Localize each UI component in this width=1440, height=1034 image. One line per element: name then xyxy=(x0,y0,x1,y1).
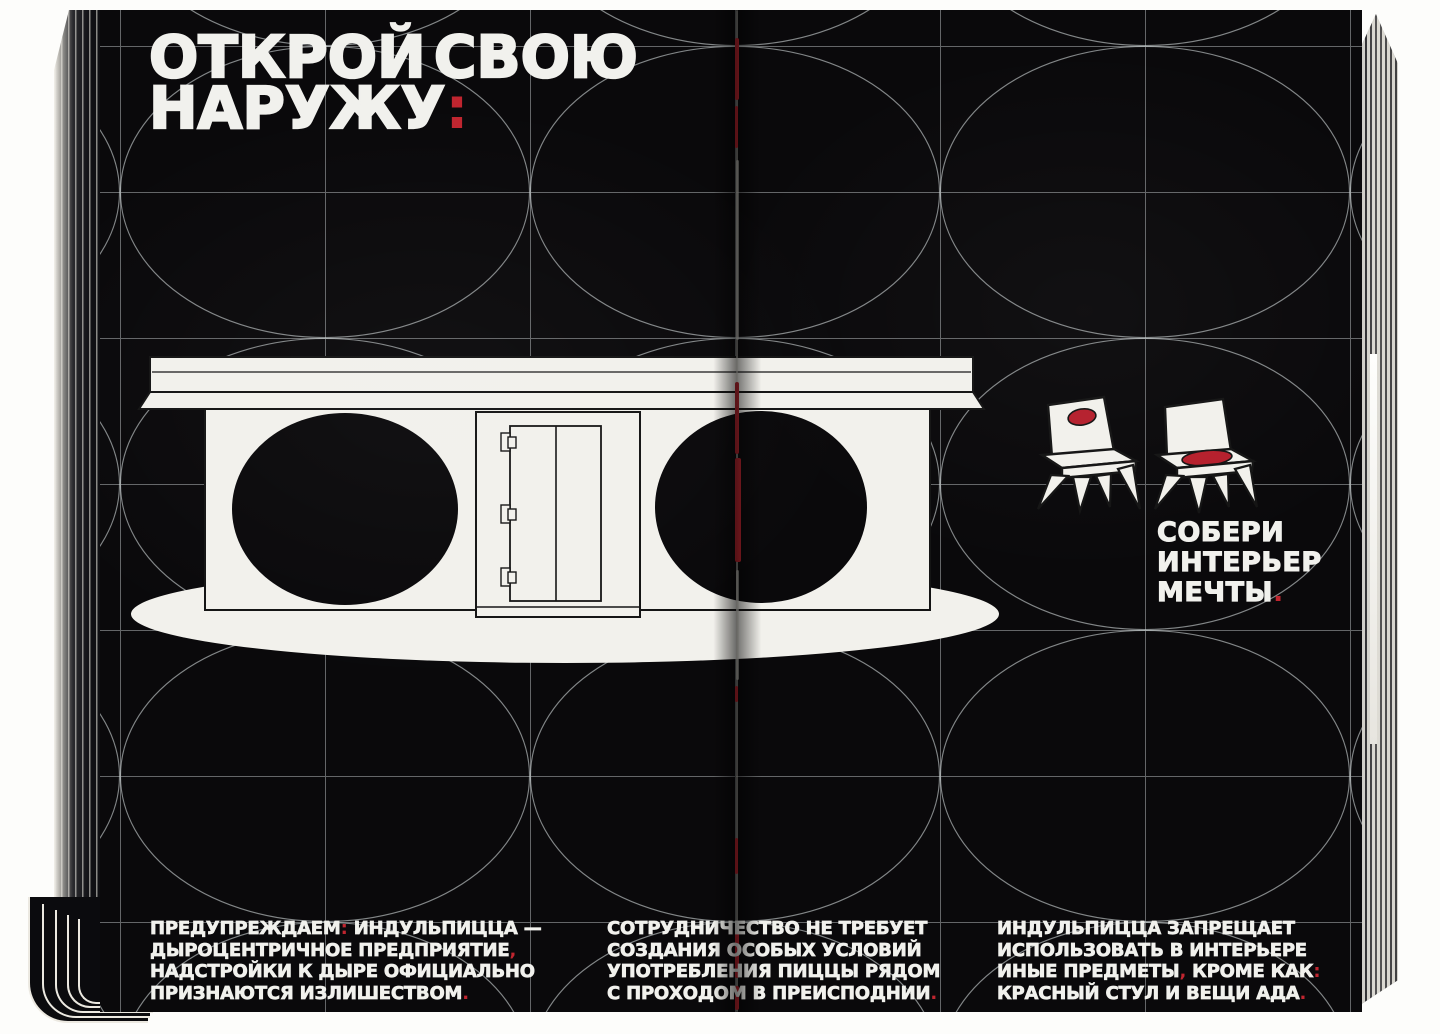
counter-top-slab xyxy=(150,357,973,392)
page-edge-highlight xyxy=(1370,354,1377,744)
spine-stitch-red xyxy=(735,382,739,454)
spine-crease xyxy=(736,160,739,340)
footnote-prohibition: ИНДУЛЬПИЦЦА ЗАПРЕЩАЕТИСПОЛЬЗОВАТЬ В ИНТЕ… xyxy=(997,918,1320,1004)
chair-left-icon xyxy=(1038,397,1140,511)
page-stack-left-edge xyxy=(54,10,104,1012)
spine-stitch-red xyxy=(735,458,741,562)
page-stack-right-edge xyxy=(1360,14,1398,1010)
magazine-spread: ОТКРОЙ СВОЮНАРУЖУ: СОБЕРИИНТЕРЬЕРМЕЧТЫ. … xyxy=(100,10,1362,1012)
spine-crease xyxy=(736,570,739,680)
interior-note: СОБЕРИИНТЕРЬЕРМЕЧТЫ. xyxy=(1157,518,1322,608)
spine-fold xyxy=(730,10,744,1012)
spine-stitch-red xyxy=(735,106,738,148)
footnote-warning: ПРЕДУПРЕЖДАЕМ: ИНДУЛЬПИЦЦА —ДЫРОЦЕНТРИЧН… xyxy=(150,918,542,1004)
headline: ОТКРОЙ СВОЮНАРУЖУ: xyxy=(149,32,638,134)
counter-illustration xyxy=(131,357,999,663)
spine-stitch-red xyxy=(735,686,738,702)
right-black-hole xyxy=(655,411,867,603)
footnote-cooperation: СОТРУДНИЧЕСТВО НЕ ТРЕБУЕТСОЗДАНИЯ ОСОБЫХ… xyxy=(607,918,940,1004)
spine-stitch-red xyxy=(735,38,739,100)
cornice-flare xyxy=(139,392,984,409)
chair-right-icon xyxy=(1155,399,1257,513)
book-scan: ОТКРОЙ СВОЮНАРУЖУ: СОБЕРИИНТЕРЬЕРМЕЧТЫ. … xyxy=(0,0,1440,1034)
spine-stitch-red xyxy=(735,838,738,874)
left-black-hole xyxy=(232,413,458,605)
